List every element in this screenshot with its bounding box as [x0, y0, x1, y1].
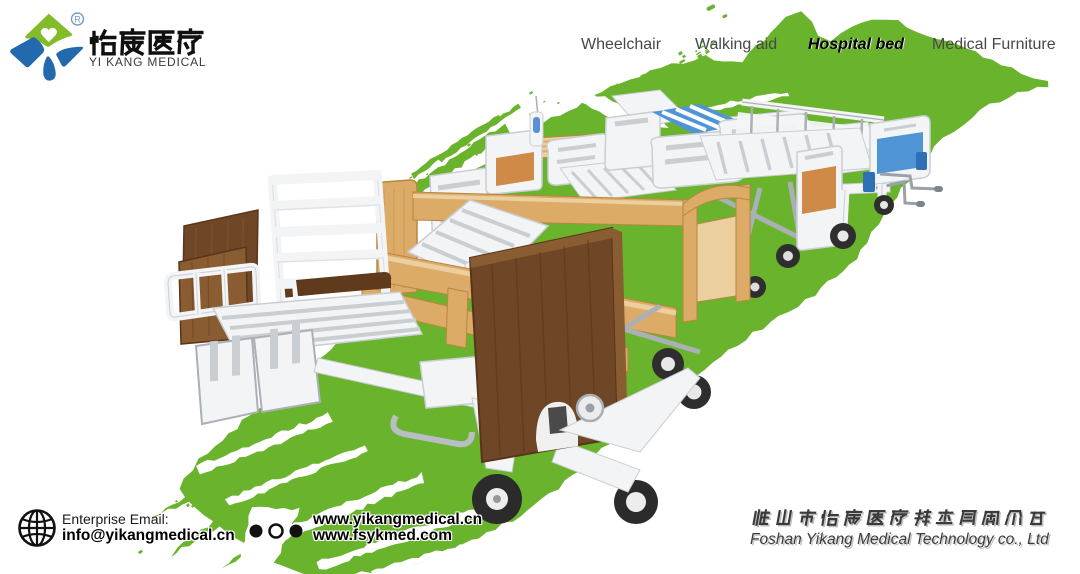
svg-text:R: R: [74, 15, 81, 25]
